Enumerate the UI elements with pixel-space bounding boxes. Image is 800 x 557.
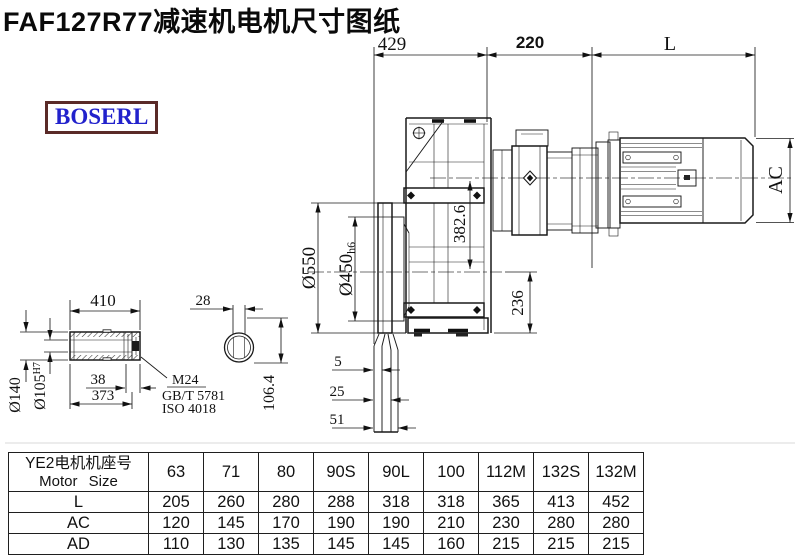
- col-90l: 90L: [369, 453, 424, 492]
- cell-L-63: 205: [149, 492, 204, 513]
- dim-236-label: 236: [508, 290, 527, 316]
- cell-AD-112m: 215: [479, 534, 534, 555]
- dim-ac-label: AC: [765, 166, 787, 194]
- cell-AD-90l: 145: [369, 534, 424, 555]
- dim-25-label: 25: [330, 384, 345, 400]
- dim-220-label: 220: [516, 33, 544, 52]
- thread-std2: ISO 4018: [162, 402, 216, 417]
- table-header-row: YE2电机机座号 Motor Size 63 71 80 90S 90L 100…: [9, 453, 644, 492]
- cell-AC-90l: 190: [369, 513, 424, 534]
- col-100: 100: [424, 453, 479, 492]
- dim-410-label: 410: [90, 291, 116, 310]
- dim-28-label: 28: [196, 293, 211, 309]
- cell-AC-90s: 190: [314, 513, 369, 534]
- cell-AD-71: 130: [204, 534, 259, 555]
- drawing-page: 429 220 L AC Ø5: [0, 0, 800, 557]
- motor-size-header-en: Motor Size: [9, 473, 148, 490]
- dim-ac: AC: [756, 139, 794, 223]
- cell-L-90l: 318: [369, 492, 424, 513]
- thread-label: M24: [172, 373, 198, 388]
- cell-L-112m: 365: [479, 492, 534, 513]
- dim-373-label: 373: [92, 388, 115, 404]
- row-label-AD: AD: [9, 534, 149, 555]
- dim-L-label: L: [664, 33, 676, 55]
- dim-38-label: 38: [91, 372, 106, 388]
- dim-382-236: 382.6 236: [450, 181, 537, 333]
- cell-AD-80: 135: [259, 534, 314, 555]
- motor-size-header: YE2电机机座号 Motor Size: [9, 453, 149, 492]
- dim-51-label: 51: [330, 412, 345, 428]
- col-80: 80: [259, 453, 314, 492]
- col-90s: 90S: [314, 453, 369, 492]
- cell-AC-80: 170: [259, 513, 314, 534]
- cell-AC-63: 120: [149, 513, 204, 534]
- cell-L-80: 280: [259, 492, 314, 513]
- mounting-leg: [374, 334, 398, 432]
- cell-AD-132m: 215: [589, 534, 644, 555]
- dim-dia105-label: Ø105H7: [32, 362, 49, 410]
- cell-L-132s: 413: [534, 492, 589, 513]
- brand-text: BOSERL: [55, 104, 148, 129]
- cell-L-71: 260: [204, 492, 259, 513]
- gearbox-front-view: [404, 118, 491, 337]
- cell-AC-132m: 280: [589, 513, 644, 534]
- page-title: FAF127R77减速机电机尺寸图纸: [3, 0, 401, 39]
- motor-size-header-cn: YE2电机机座号: [9, 454, 148, 473]
- dim-dia450-label: Ø450h6: [336, 242, 358, 296]
- cell-AD-63: 110: [149, 534, 204, 555]
- col-71: 71: [204, 453, 259, 492]
- cell-AC-100: 210: [424, 513, 479, 534]
- cell-AC-132s: 280: [534, 513, 589, 534]
- cell-L-132m: 452: [589, 492, 644, 513]
- col-63: 63: [149, 453, 204, 492]
- row-label-L: L: [9, 492, 149, 513]
- cell-AC-112m: 230: [479, 513, 534, 534]
- table-row-AD: AD 110 130 135 145 145 160 215 215 215: [9, 534, 644, 555]
- dim-dia550-label: Ø550: [299, 247, 320, 289]
- dim-5-label: 5: [334, 354, 342, 370]
- input-adapter: [493, 130, 610, 235]
- col-112m: 112M: [479, 453, 534, 492]
- technical-drawing: 429 220 L AC Ø5: [0, 0, 800, 450]
- cell-L-100: 318: [424, 492, 479, 513]
- row-label-AC: AC: [9, 513, 149, 534]
- motor-side-view: [608, 132, 753, 236]
- dim-382-label: 382.6: [450, 205, 469, 243]
- dim-dia550-dia450: Ø550 Ø450h6: [299, 203, 394, 333]
- dimension-table: YE2电机机座号 Motor Size 63 71 80 90S 90L 100…: [8, 452, 644, 555]
- cell-AD-90s: 145: [314, 534, 369, 555]
- centerlines: [5, 178, 795, 443]
- cell-AD-132s: 215: [534, 534, 589, 555]
- cell-AC-71: 145: [204, 513, 259, 534]
- col-132m: 132M: [589, 453, 644, 492]
- cell-AD-100: 160: [424, 534, 479, 555]
- dim-dia140-label: Ø140: [7, 377, 24, 413]
- cell-L-90s: 288: [314, 492, 369, 513]
- dim-106-label: 106.4: [261, 375, 278, 411]
- table-row-L: L 205 260 280 288 318 318 365 413 452: [9, 492, 644, 513]
- dim-5-25-51: 5 25 51: [330, 354, 417, 428]
- col-132s: 132S: [534, 453, 589, 492]
- table-row-AC: AC 120 145 170 190 190 210 230 280 280: [9, 513, 644, 534]
- brand-logo: BOSERL: [45, 101, 158, 134]
- hollow-shaft-detail: 410 38 373: [7, 291, 225, 417]
